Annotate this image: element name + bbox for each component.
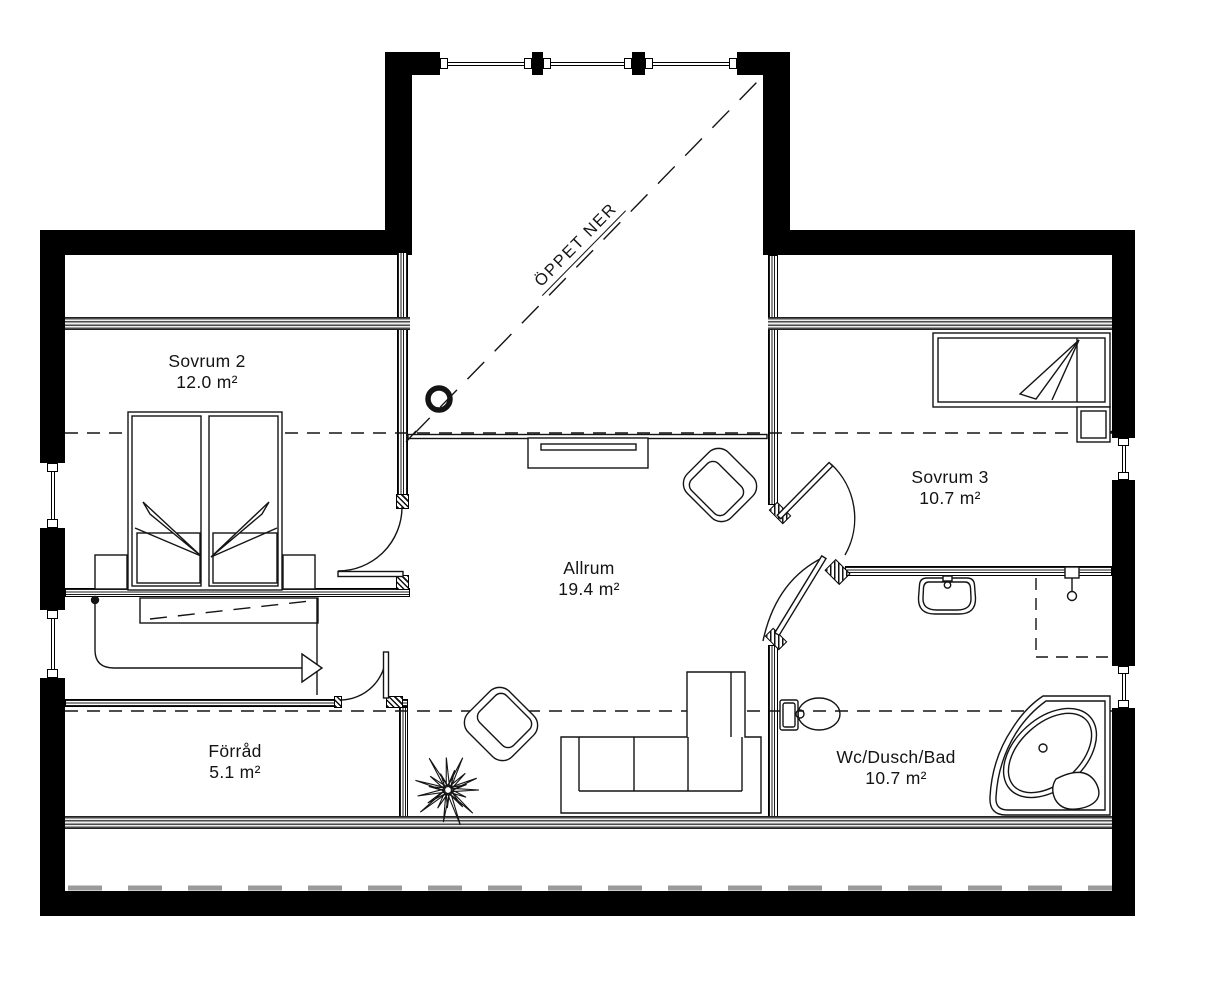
room-area: 5.1 m² [208,762,261,783]
room-label-forrad: Förråd 5.1 m² [208,741,261,783]
armchair [678,443,763,528]
shower-mixer [1065,567,1079,601]
sofa [561,672,761,813]
plant [415,758,479,825]
room-label-wc-dusch-bad: Wc/Dusch/Bad 10.7 m² [836,747,955,789]
room-name: Sovrum 2 [168,351,245,372]
toilet [780,698,840,730]
room-name: Förråd [208,741,261,762]
bed-sovrum2 [128,412,282,590]
room-label-sovrum-2: Sovrum 2 12.0 m² [168,351,245,393]
tub-seat [1053,772,1099,809]
armchair [459,682,544,767]
shower-area [1036,578,1112,657]
floorplan: Sovrum 2 12.0 m² Sovrum 3 10.7 m² Allrum… [0,0,1220,1002]
door-sovrum3 [777,462,855,555]
sink [918,576,975,614]
room-label-allrum: Allrum 19.4 m² [558,558,619,600]
room-name: Allrum [558,558,619,579]
room-area: 12.0 m² [168,372,245,393]
bed-sovrum3 [933,333,1110,407]
stair-direction-arrow [302,654,322,682]
room-area: 10.7 m² [911,488,988,509]
flue-pipe-icon [428,388,450,410]
open-below-diagonal [413,82,757,435]
room-name: Wc/Dusch/Bad [836,747,955,768]
room-name: Sovrum 3 [911,467,988,488]
staircase [92,597,323,696]
room-area: 19.4 m² [558,579,619,600]
floorplan-linework [0,0,1220,1002]
bathtub [986,691,1113,815]
nightstand [1077,407,1110,442]
room-area: 10.7 m² [836,768,955,789]
door-bathroom [763,556,826,641]
tv-bench [528,438,648,468]
door-sovrum2 [338,507,403,577]
door-stairhall [340,652,389,700]
room-label-sovrum-3: Sovrum 3 10.7 m² [911,467,988,509]
